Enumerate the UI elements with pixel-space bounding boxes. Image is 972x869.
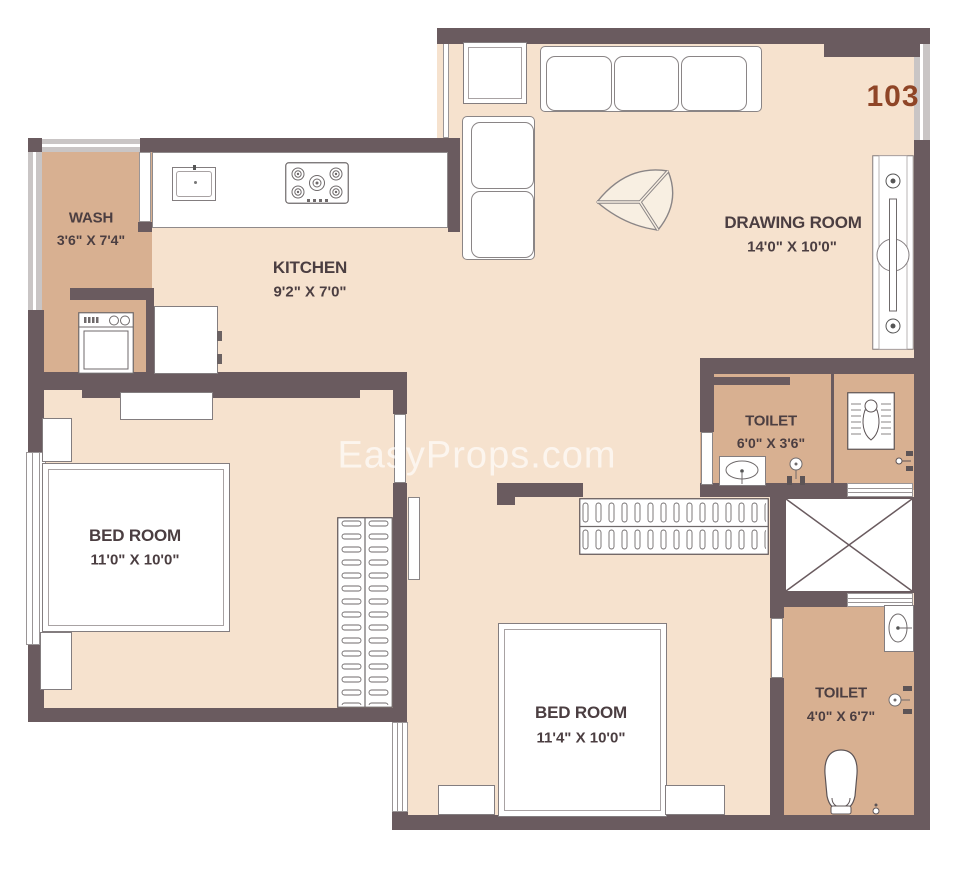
watermark: EasyProps.com	[337, 435, 616, 478]
room-dims-toilet2: 4'0" X 6'7"	[807, 708, 875, 724]
wall	[28, 372, 407, 390]
wall-partition	[831, 374, 834, 483]
wall	[770, 490, 784, 607]
sofa-cushion	[614, 56, 679, 111]
dresser	[120, 392, 213, 420]
room-label-drawing: DRAWING ROOM	[724, 213, 861, 233]
sofa-cushion	[471, 122, 534, 189]
wash-louver-window-left	[28, 150, 42, 310]
main-door-icon	[872, 155, 914, 350]
wall	[770, 678, 784, 830]
corner-table	[463, 42, 527, 104]
wash-basin-icon	[884, 605, 914, 652]
side-table	[438, 785, 495, 815]
unit-number: 103	[866, 80, 919, 114]
washing-machine-icon	[78, 312, 134, 374]
wardrobe-icon	[337, 517, 393, 708]
room-label-wash: WASH	[69, 210, 113, 227]
wall	[70, 288, 152, 300]
wall	[770, 607, 784, 618]
kitchen-sink-icon	[172, 167, 216, 201]
squat-toilet-icon	[847, 392, 895, 450]
coffee-table-icon	[585, 160, 685, 245]
drain-icon	[871, 802, 881, 816]
wall	[914, 140, 930, 830]
wall	[448, 138, 460, 232]
room-label-toilet2: TOILET	[815, 685, 867, 702]
sofa-cushion	[546, 56, 612, 111]
room-dims-kitchen: 9'2" X 7'0"	[273, 284, 346, 301]
room-dims-bedroom1: 11'0" X 10'0"	[91, 552, 180, 569]
water-closet-icon	[820, 748, 862, 816]
duct-shaft	[784, 497, 914, 593]
room-label-kitchen: KITCHEN	[273, 258, 347, 278]
room-dims-toilet1: 6'0" X 3'6"	[737, 435, 805, 451]
wall	[146, 288, 154, 372]
floor-plan: 103 WASH 3'6" X 7'4" KITCHEN 9'2" X 7'0"…	[0, 0, 972, 869]
side-table	[40, 632, 72, 690]
room-label-bedroom1: BED ROOM	[89, 526, 181, 546]
wardrobe-icon	[579, 498, 769, 555]
refrigerator-icon	[154, 306, 218, 374]
duct-cross-icon	[786, 499, 912, 591]
room-dims-bedroom2: 11'4" X 10'0"	[537, 730, 626, 747]
wash-basin-icon	[719, 456, 766, 486]
wall	[28, 138, 42, 152]
toilet1-door-leaf	[701, 432, 713, 485]
wall	[700, 374, 714, 432]
wash-window-pane	[139, 152, 151, 222]
side-table	[665, 785, 725, 815]
wall	[393, 390, 407, 414]
wall	[393, 483, 407, 722]
side-table	[42, 418, 72, 462]
shower-icon	[886, 683, 914, 717]
room-label-bedroom2: BED ROOM	[535, 703, 627, 723]
wall	[28, 708, 405, 722]
gas-stove-icon	[285, 162, 349, 204]
sofa-cushion	[681, 56, 747, 111]
wall	[700, 358, 930, 374]
sofa-cushion	[471, 191, 534, 258]
room-dims-wash: 3'6" X 7'4"	[57, 232, 125, 248]
room-dims-drawing: 14'0" X 10'0"	[747, 239, 837, 256]
wall-beam	[710, 377, 790, 385]
kitchen-partition-glass	[443, 44, 449, 138]
wall	[497, 483, 515, 505]
bedroom2-window	[392, 722, 408, 812]
shower-icon	[783, 455, 809, 487]
toilet1-vent-threshold	[847, 483, 913, 497]
room-label-toilet1: TOILET	[745, 413, 797, 430]
wall	[392, 815, 930, 830]
door-hardware-icon	[895, 450, 914, 472]
bed	[42, 463, 230, 632]
toilet2-door-leaf	[771, 618, 783, 678]
wall-beam	[824, 44, 920, 57]
bedroom2-door-leaf	[408, 497, 420, 580]
wall-sill	[138, 222, 152, 232]
wall	[770, 593, 847, 607]
wash-louver-window-top	[40, 139, 140, 152]
wall	[140, 138, 460, 152]
